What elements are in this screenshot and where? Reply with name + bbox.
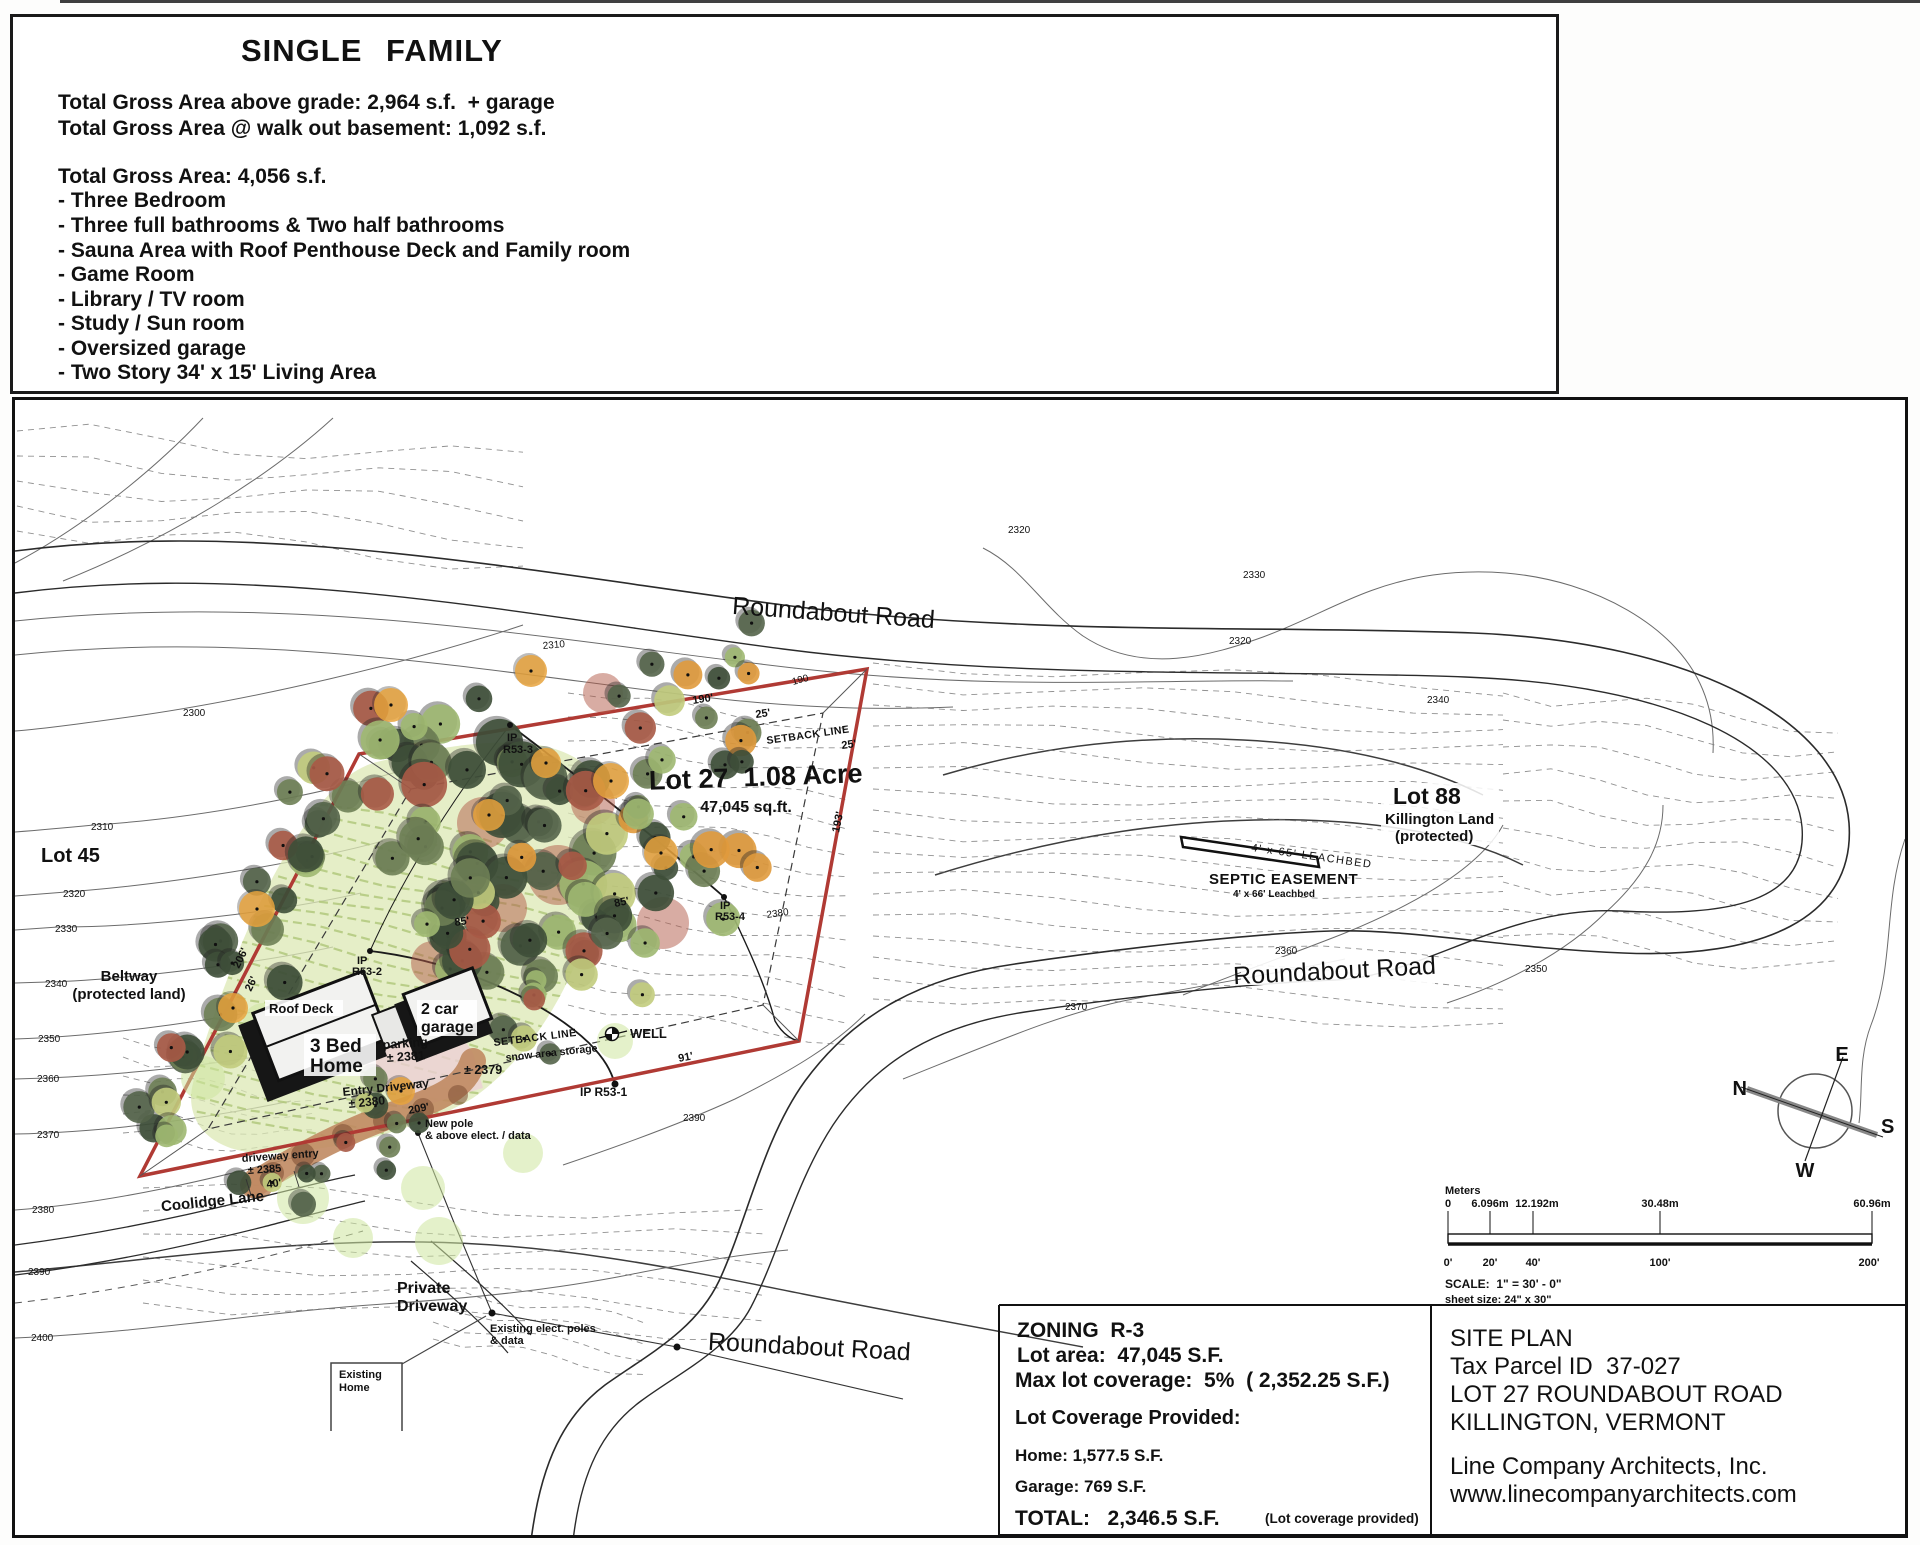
feature-game-room: - Game Room <box>58 263 195 287</box>
compass-e: E <box>1835 1044 1848 1066</box>
svg-text:2310: 2310 <box>542 639 566 652</box>
titleblock-lot-address: LOT 27 ROUNDABOUT ROAD <box>1450 1381 1783 1408</box>
scale-m0: 0 <box>1445 1198 1451 1210</box>
compass-s: S <box>1881 1116 1894 1138</box>
pin-ip-r53-1: IP R53-1 <box>580 1085 627 1099</box>
svg-text:2360: 2360 <box>1275 946 1298 957</box>
private-driveway-label-1: Private <box>397 1280 450 1297</box>
existing-home-label-1: Existing <box>339 1369 382 1381</box>
sheet-size-note: sheet size: 24" x 30" <box>1445 1294 1551 1306</box>
svg-text:2390: 2390 <box>28 1267 51 1278</box>
dim-25-a: 25' <box>755 707 772 721</box>
dim-40: 40' <box>266 1177 283 1191</box>
svg-text:2360: 2360 <box>37 1074 60 1085</box>
scale-m4: 60.96m <box>1853 1198 1891 1210</box>
zoning-block: ZONING R-3 Lot area: 47,045 S.F. Max lot… <box>1015 1319 1419 1530</box>
dim-190-pencil: 190 <box>791 673 810 688</box>
lot45-label: Lot 45 <box>41 845 100 867</box>
parking-elev: ± 2381 <box>386 1048 425 1065</box>
beltway-label-2: (protected land) <box>72 986 185 1003</box>
lot88-sub1: Killington Land <box>1385 811 1494 828</box>
zoning-max-coverage: Max lot coverage: 5% ( 2,352.25 S.F.) <box>1015 1369 1390 1392</box>
svg-text:2350: 2350 <box>1525 964 1548 975</box>
feature-study: - Study / Sun room <box>58 312 245 336</box>
home-label-2: Home <box>310 1056 363 1077</box>
scale-bar: Meters 0 6.096m 12.192m 30.48m 60.96m 0'… <box>1444 1185 1891 1306</box>
scale-f0: 0' <box>1444 1257 1453 1269</box>
gross-area-total: Total Gross Area: 4,056 s.f. <box>58 165 326 189</box>
driveway-entry-elev: ± 2385 <box>247 1163 281 1177</box>
gross-area-above-grade: Total Gross Area above grade: 2,964 s.f.… <box>58 91 555 115</box>
new-pole-label-1: New pole <box>425 1118 473 1130</box>
svg-text:2300: 2300 <box>183 708 206 719</box>
scale-m1: 6.096m <box>1471 1198 1509 1210</box>
well-label: WELL <box>630 1026 667 1041</box>
site-plan-sheet: SINGLE FAMILY Total Gross Area above gra… <box>0 0 1920 1545</box>
svg-text:2320: 2320 <box>63 889 86 900</box>
svg-text:2340: 2340 <box>45 979 68 990</box>
svg-text:2370: 2370 <box>1065 1002 1088 1013</box>
feature-library: - Library / TV room <box>58 288 245 312</box>
home-label-1: 3 Bed <box>310 1036 362 1057</box>
new-pole-label-2: & above elect. / data <box>425 1130 532 1142</box>
zoning-total: TOTAL: 2,346.5 S.F. <box>1015 1507 1220 1530</box>
scale-m3: 30.48m <box>1641 1198 1679 1210</box>
compass-n: N <box>1733 1078 1747 1100</box>
setback-label-north: SETBACK LINE <box>766 723 850 747</box>
feature-bedrooms: - Three Bedroom <box>58 189 226 213</box>
svg-text:2310: 2310 <box>91 822 114 833</box>
spot-elev-2379: ± 2379 <box>464 1063 502 1077</box>
zoning-home-sf: Home: 1,577.5 S.F. <box>1015 1446 1163 1465</box>
titleblock-url: www.linecompanyarchitects.com <box>1449 1481 1797 1508</box>
garage-label-1: 2 car <box>421 1001 458 1018</box>
feature-sauna: - Sauna Area with Roof Penthouse Deck an… <box>58 239 630 263</box>
septic-easement-label: SEPTIC EASEMENT <box>1209 871 1358 888</box>
scan-artifact-line <box>60 0 1920 3</box>
zoning-coverage-provided: Lot Coverage Provided: <box>1015 1407 1241 1429</box>
titleblock-tax-parcel: Tax Parcel ID 37-027 <box>1450 1353 1681 1380</box>
dim-193: 193' <box>830 810 846 833</box>
site-plan-drawing-box: Roundabout Road Roundabout Road Roundabo… <box>12 397 1908 1538</box>
scale-f3: 100' <box>1650 1257 1671 1269</box>
zoning-garage-sf: Garage: 769 S.F. <box>1015 1477 1146 1496</box>
svg-text:2320: 2320 <box>1008 525 1031 536</box>
svg-text:2330: 2330 <box>55 924 78 935</box>
zoning-title: ZONING R-3 <box>1017 1319 1144 1342</box>
dim-25-b: 25' <box>841 738 858 752</box>
svg-text:2380: 2380 <box>32 1205 55 1216</box>
scale-note: SCALE: 1" = 30' - 0" <box>1445 1277 1562 1291</box>
septic-sub-label: 4' x 66' Leachbed <box>1233 889 1315 900</box>
zoning-total-note: (Lot coverage provided) <box>1265 1511 1419 1526</box>
svg-text:2400: 2400 <box>31 1333 54 1344</box>
garage-label-2: garage <box>421 1019 474 1036</box>
existing-poles-label-1: Existing elect. poles <box>490 1323 596 1335</box>
zoning-lot-area: Lot area: 47,045 S.F. <box>1017 1344 1224 1367</box>
feature-living-area: - Two Story 34' x 15' Living Area <box>58 361 376 385</box>
svg-text:2370: 2370 <box>37 1130 60 1141</box>
pin-ip-r53-2b: R53-2 <box>352 966 382 978</box>
titleblock-site-plan: SITE PLAN <box>1450 1325 1573 1352</box>
title-block: SITE PLAN Tax Parcel ID 37-027 LOT 27 RO… <box>1449 1325 1797 1508</box>
dim-190: 190' <box>692 692 715 707</box>
private-driveway-label-2: Driveway <box>397 1298 467 1315</box>
scale-m2: 12.192m <box>1515 1198 1559 1210</box>
svg-text:2390: 2390 <box>683 1113 706 1124</box>
dim-85-b: 85' <box>454 915 471 929</box>
lot88-label: Lot 88 <box>1393 783 1461 809</box>
feature-garage: - Oversized garage <box>58 337 246 361</box>
scale-f4: 200' <box>1859 1257 1880 1269</box>
page-title: SINGLE FAMILY <box>241 33 503 69</box>
svg-text:2350: 2350 <box>38 1034 61 1045</box>
lot88-sub2: (protected) <box>1395 828 1473 845</box>
coolidge-lane-label: Coolidge Lane <box>160 1188 265 1216</box>
lot27-area: 47,045 sq.ft. <box>700 799 792 816</box>
titleblock-firm: Line Company Architects, Inc. <box>1450 1453 1767 1480</box>
gross-area-basement: Total Gross Area @ walk out basement: 1,… <box>58 117 546 141</box>
program-summary-box: SINGLE FAMILY Total Gross Area above gra… <box>10 14 1559 394</box>
feature-bathrooms: - Three full bathrooms & Two half bathro… <box>58 214 504 238</box>
site-plan-map: Roundabout Road Roundabout Road Roundabo… <box>15 400 1905 1535</box>
roof-deck-label: Roof Deck <box>269 1001 334 1016</box>
existing-poles-label-2: & data <box>490 1335 525 1347</box>
scale-meters-label: Meters <box>1445 1185 1480 1197</box>
pin-ip-r53-3b: R53-3 <box>503 744 533 756</box>
existing-home-label-2: Home <box>339 1382 370 1394</box>
beltway-label-1: Beltway <box>101 968 158 985</box>
titleblock-city-state: KILLINGTON, VERMONT <box>1450 1409 1726 1436</box>
lot27-title: Lot 27 1.08 Acre <box>648 758 863 795</box>
pin-ip-r53-3a: IP <box>507 732 517 744</box>
scale-f1: 20' <box>1483 1257 1498 1269</box>
svg-text:2320: 2320 <box>1229 636 1252 647</box>
compass-w: W <box>1796 1160 1815 1182</box>
svg-text:2340: 2340 <box>1427 695 1450 706</box>
svg-text:2380: 2380 <box>766 907 790 921</box>
scale-f2: 40' <box>1526 1257 1541 1269</box>
svg-text:2330: 2330 <box>1243 570 1266 581</box>
pin-ip-r53-4b: R53-4 <box>715 911 746 923</box>
compass-rose: N E S W <box>1733 1044 1895 1182</box>
